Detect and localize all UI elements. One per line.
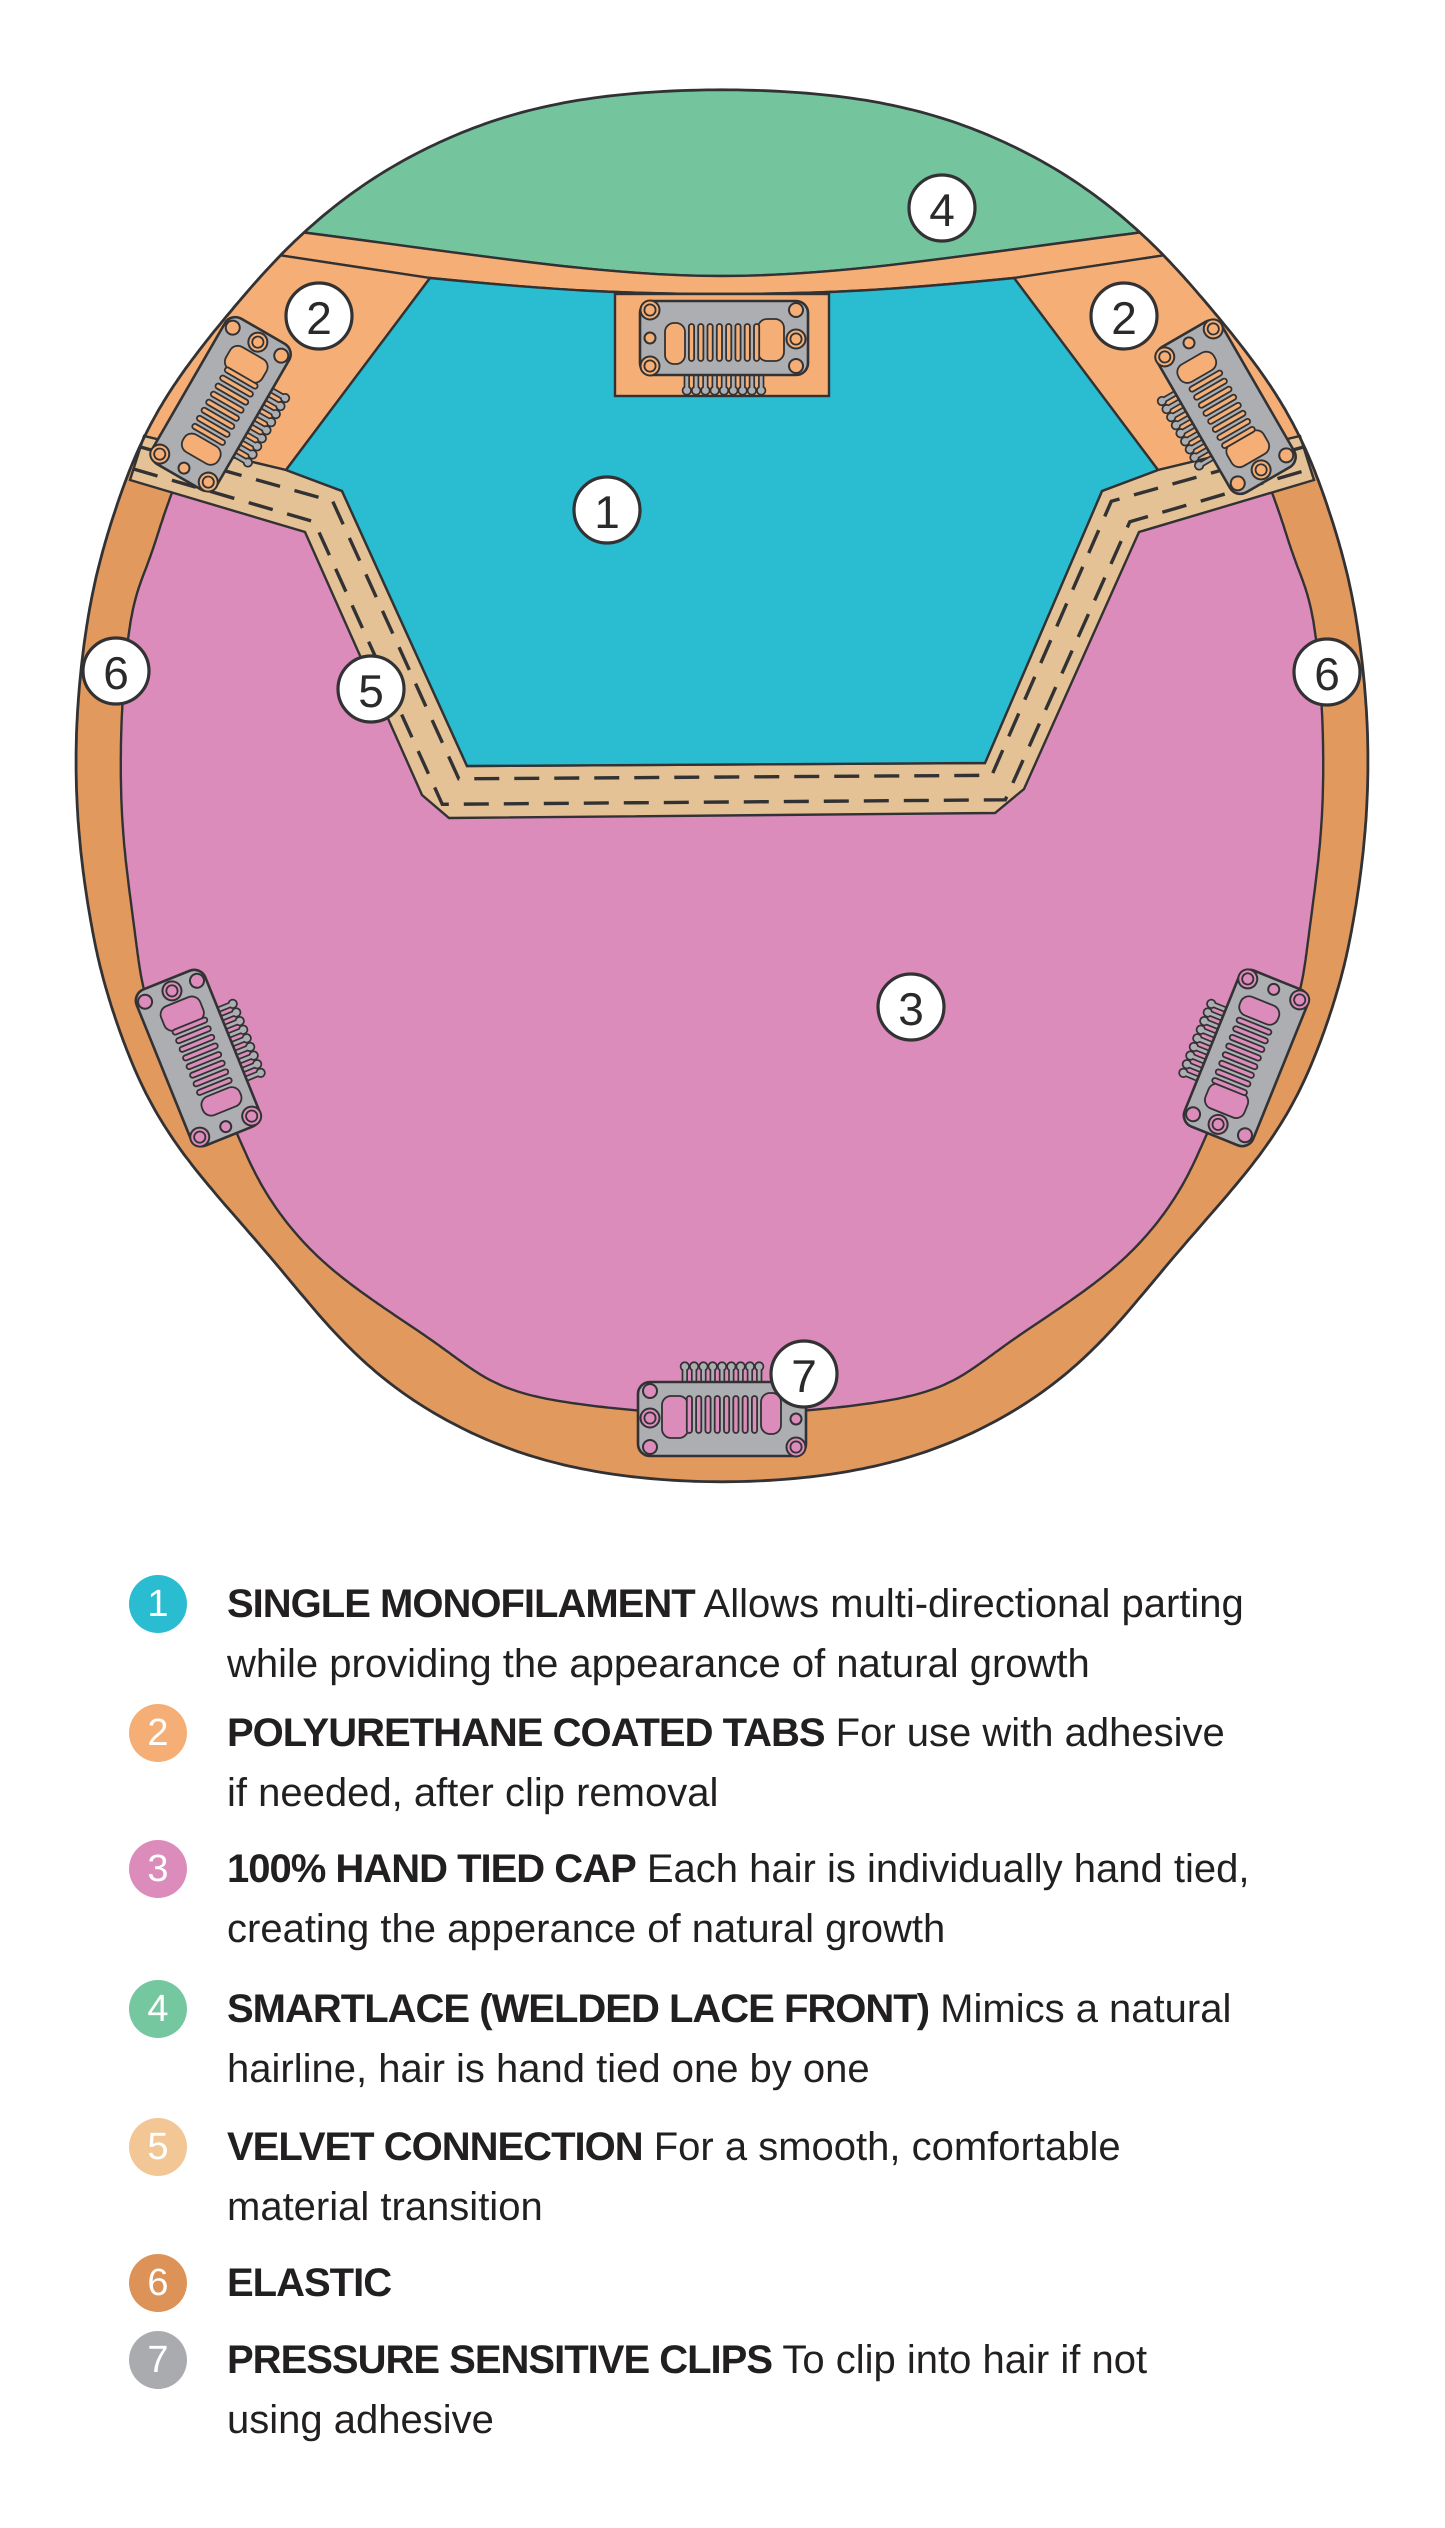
svg-text:6: 6	[1314, 648, 1340, 700]
svg-text:1: 1	[594, 486, 620, 538]
svg-text:2: 2	[306, 292, 332, 344]
svg-text:5: 5	[358, 665, 384, 717]
svg-text:3: 3	[898, 983, 924, 1035]
svg-text:2: 2	[1111, 292, 1137, 344]
svg-text:7: 7	[791, 1350, 817, 1402]
svg-text:6: 6	[103, 647, 129, 699]
svg-text:4: 4	[929, 184, 955, 236]
